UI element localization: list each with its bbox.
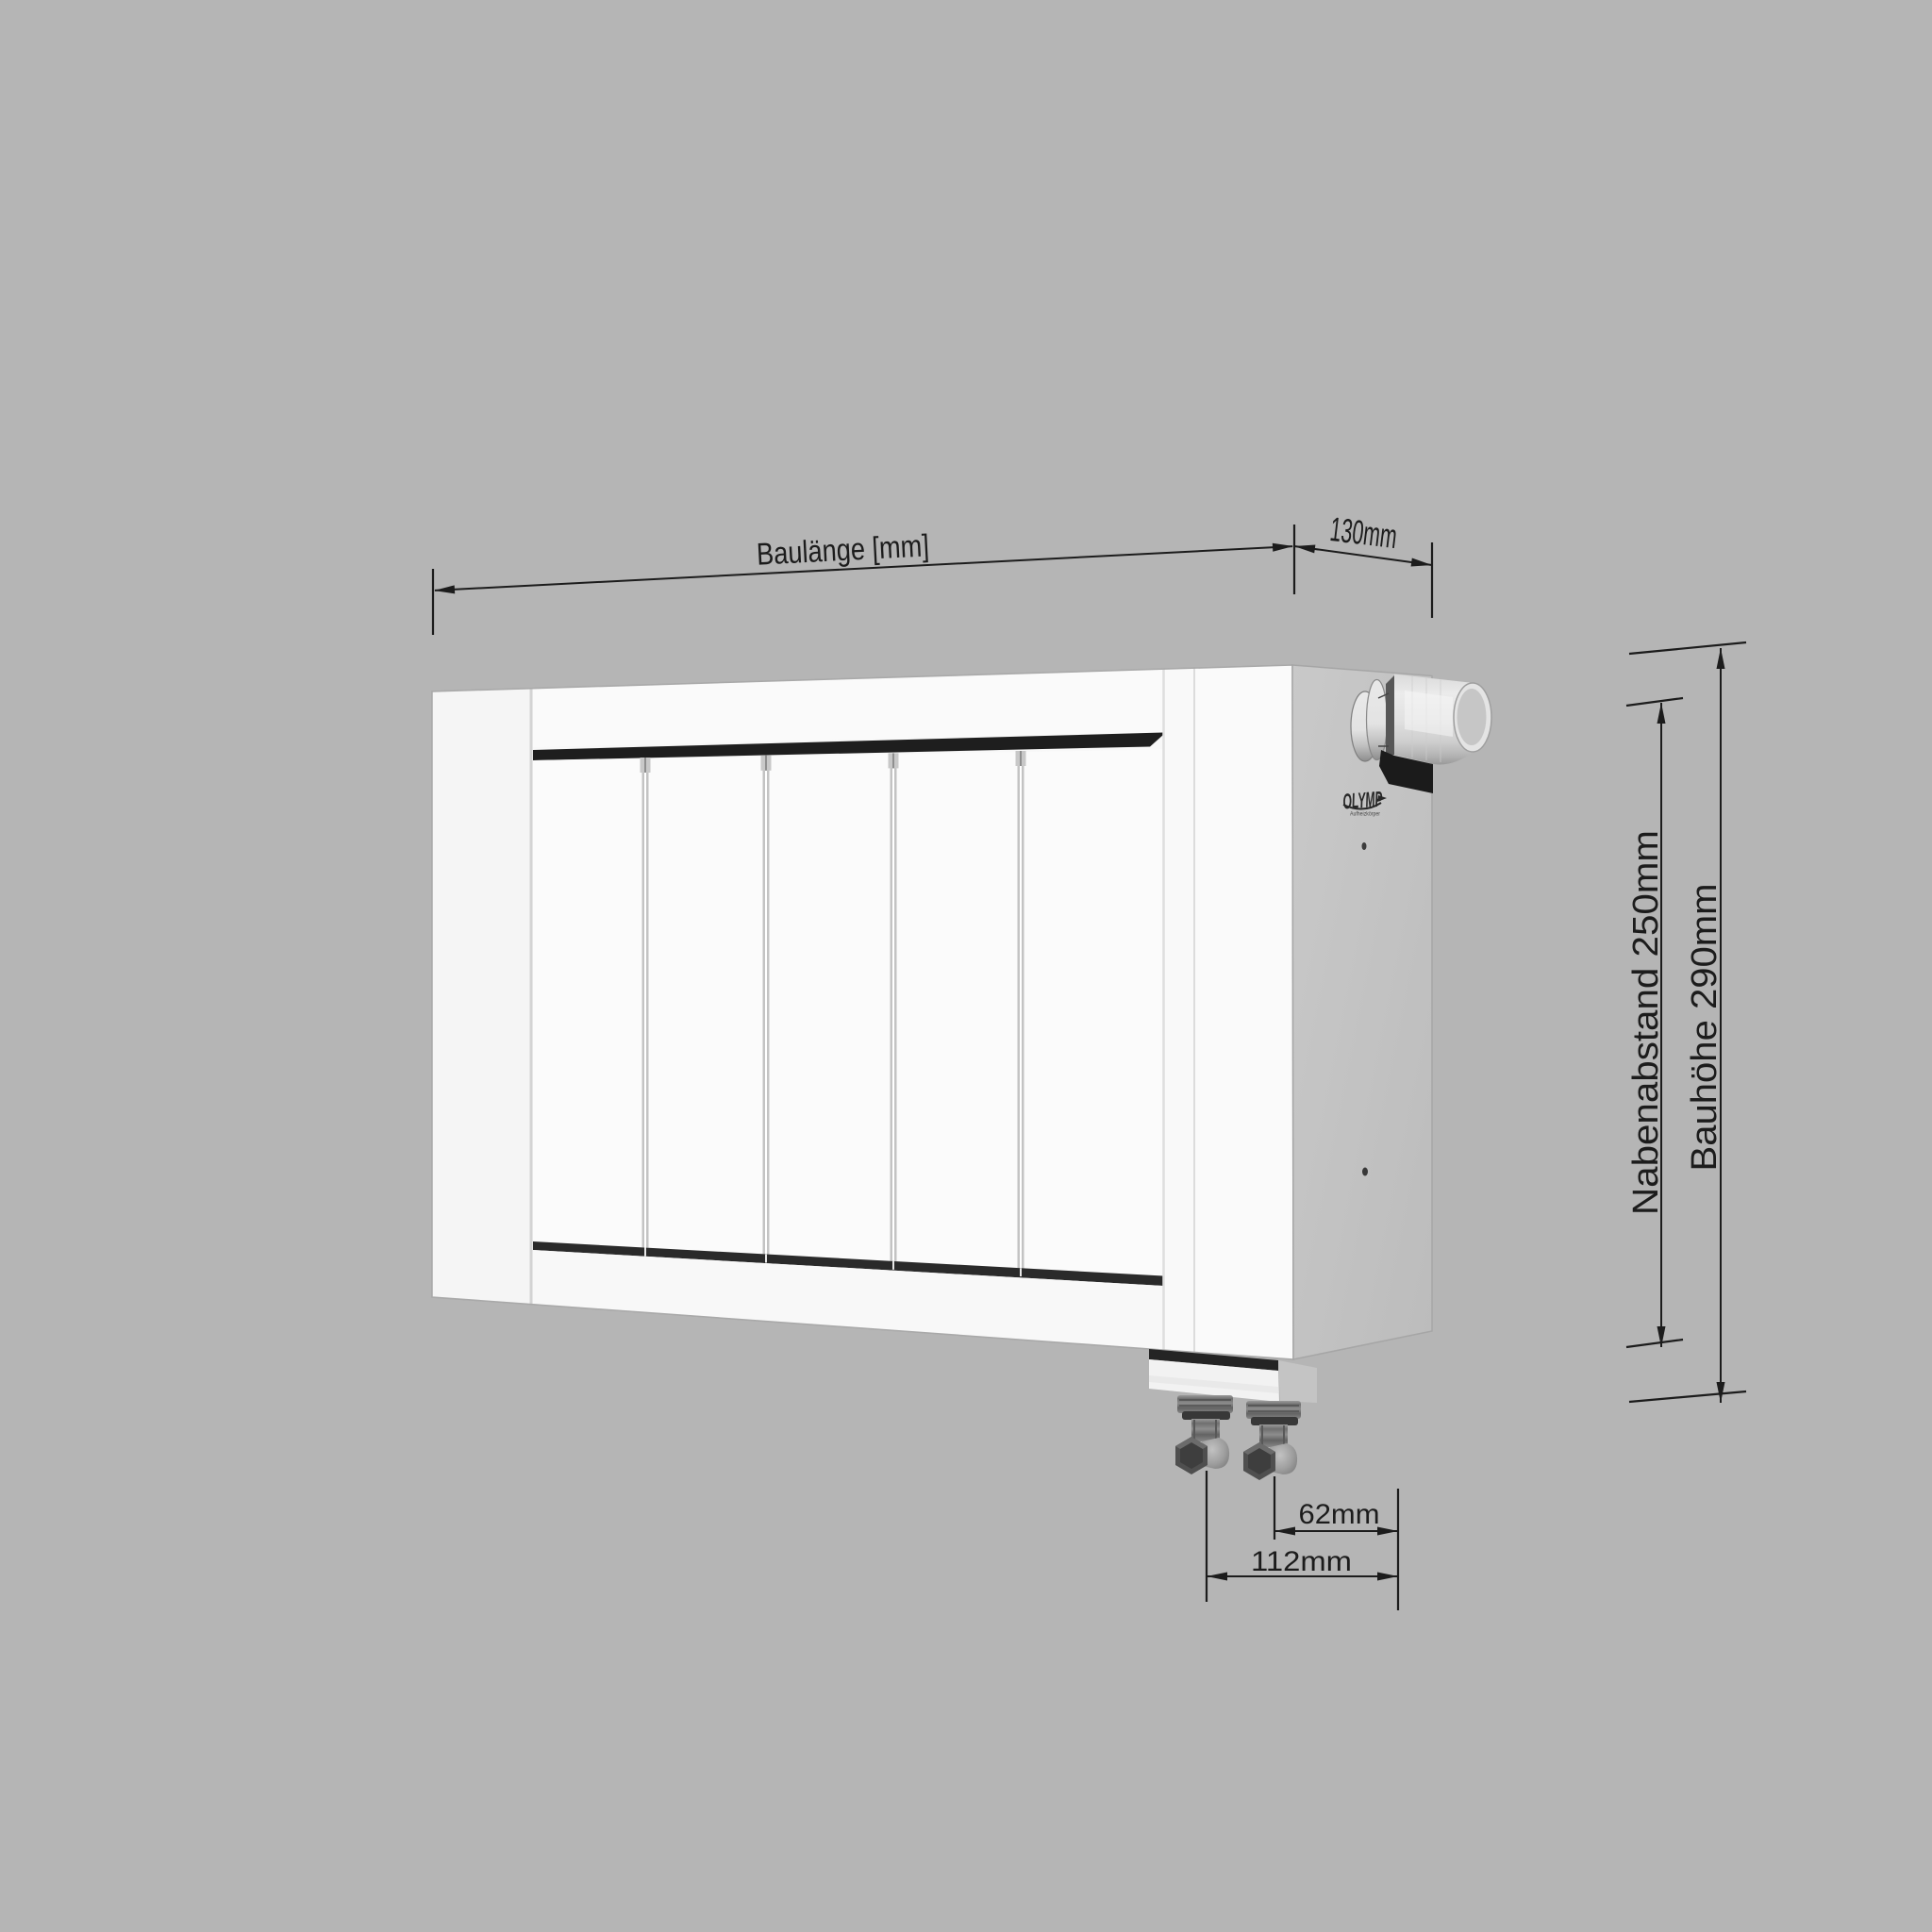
svg-text:112mm: 112mm xyxy=(1251,1546,1352,1577)
svg-text:Aufheizkörper: Aufheizkörper xyxy=(1350,812,1380,818)
svg-text:Nabenabstand 250mm: Nabenabstand 250mm xyxy=(1626,830,1666,1215)
svg-text:Bauhöhe 290mm: Bauhöhe 290mm xyxy=(1685,884,1724,1172)
svg-text:130mm: 130mm xyxy=(1328,509,1399,556)
svg-text:62mm: 62mm xyxy=(1299,1499,1380,1530)
